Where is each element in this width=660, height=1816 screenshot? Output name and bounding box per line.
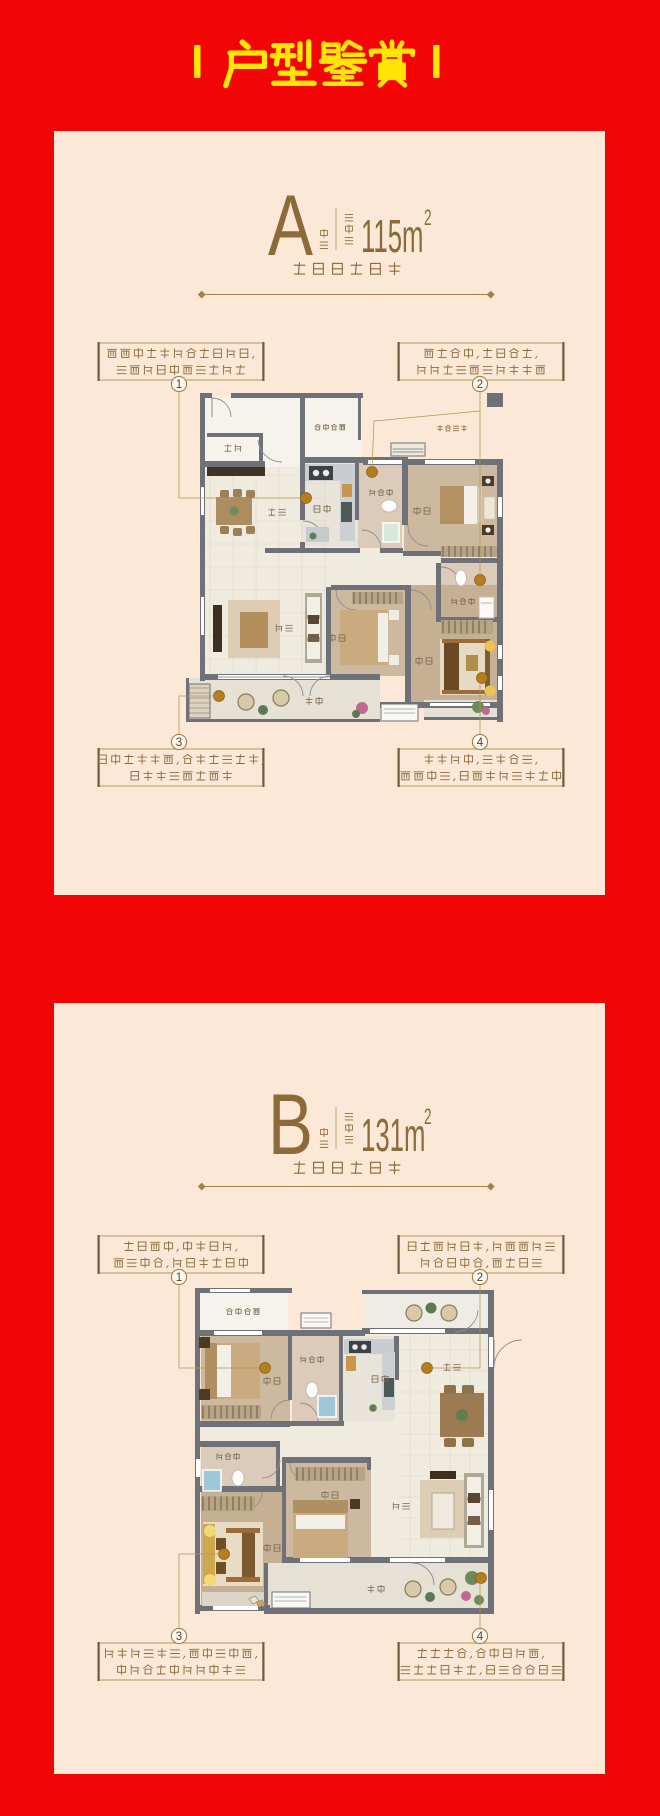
svg-text:3: 3 [176, 737, 182, 749]
svg-text:A: A [268, 178, 313, 274]
svg-text:1: 1 [176, 379, 182, 391]
svg-text:2: 2 [477, 379, 483, 391]
svg-text:1: 1 [176, 1272, 182, 1284]
svg-text:2: 2 [424, 205, 432, 230]
svg-text:2: 2 [424, 1104, 432, 1129]
svg-text:131m: 131m [361, 1109, 425, 1161]
svg-text:4: 4 [477, 737, 484, 749]
svg-text:3: 3 [176, 1631, 182, 1643]
svg-text:B: B [268, 1077, 313, 1173]
svg-text:4: 4 [477, 1631, 484, 1643]
svg-text:2: 2 [477, 1272, 483, 1284]
svg-text:115m: 115m [361, 210, 424, 262]
